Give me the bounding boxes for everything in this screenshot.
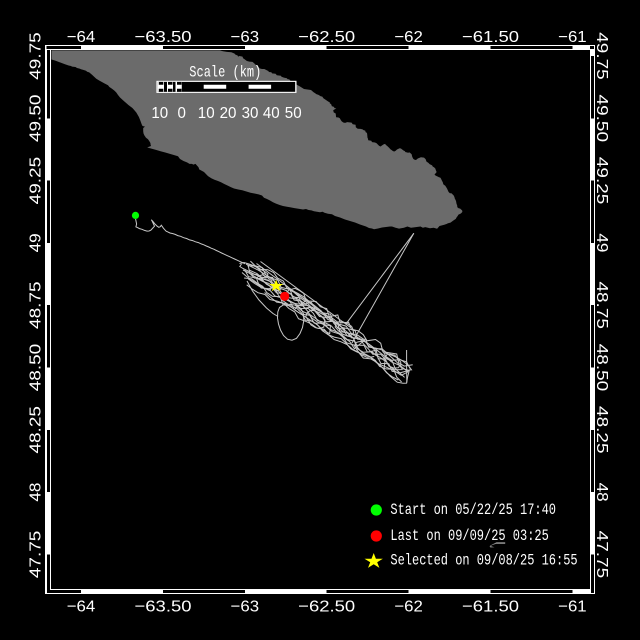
svg-text:48.50: 48.50 — [27, 344, 44, 392]
svg-text:10: 10 — [151, 105, 168, 122]
svg-text:47.75: 47.75 — [27, 531, 44, 579]
svg-text:−64: −64 — [67, 599, 96, 616]
svg-text:49.25: 49.25 — [593, 157, 610, 205]
svg-text:48: 48 — [27, 482, 44, 501]
svg-text:48.50: 48.50 — [593, 344, 610, 392]
svg-text:50: 50 — [285, 105, 302, 122]
svg-text:−61: −61 — [558, 29, 587, 46]
svg-text:0: 0 — [178, 105, 186, 122]
svg-text:−62: −62 — [394, 29, 423, 46]
svg-text:−62.50: −62.50 — [298, 29, 355, 46]
svg-text:Last on 09/09/25 03:25: Last on 09/09/25 03:25 — [390, 527, 548, 545]
svg-text:49.25: 49.25 — [27, 157, 44, 205]
svg-text:−62.50: −62.50 — [298, 599, 355, 616]
svg-text:48.25: 48.25 — [27, 406, 44, 454]
svg-text:48.75: 48.75 — [27, 281, 44, 329]
svg-text:48.25: 48.25 — [593, 406, 610, 454]
svg-text:30: 30 — [242, 105, 259, 122]
svg-text:Scale (km): Scale (km) — [189, 64, 261, 82]
svg-text:10: 10 — [198, 105, 215, 122]
svg-text:−63: −63 — [231, 29, 260, 46]
svg-text:−62: −62 — [394, 599, 423, 616]
svg-text:Start on 05/22/25 17:40: Start on 05/22/25 17:40 — [390, 501, 556, 519]
svg-text:49: 49 — [27, 233, 44, 252]
svg-text:49.50: 49.50 — [27, 94, 44, 142]
svg-text:40: 40 — [263, 105, 280, 122]
svg-text:−63: −63 — [231, 599, 260, 616]
svg-text:47.75: 47.75 — [593, 531, 610, 579]
svg-text:Selected on 09/08/25 16:55: Selected on 09/08/25 16:55 — [390, 551, 577, 569]
svg-text:−61.50: −61.50 — [462, 599, 519, 616]
svg-text:49.75: 49.75 — [593, 32, 610, 80]
svg-text:−61.50: −61.50 — [462, 29, 519, 46]
svg-text:49: 49 — [593, 233, 610, 252]
svg-text:20: 20 — [220, 105, 237, 122]
svg-text:−61: −61 — [558, 599, 587, 616]
svg-text:48.75: 48.75 — [593, 281, 610, 329]
svg-text:49.50: 49.50 — [593, 95, 610, 143]
svg-text:48: 48 — [593, 483, 610, 502]
svg-text:−64: −64 — [67, 29, 96, 46]
svg-text:49.75: 49.75 — [27, 32, 44, 80]
svg-text:−63.50: −63.50 — [135, 599, 192, 616]
svg-text:−63.50: −63.50 — [135, 29, 192, 46]
